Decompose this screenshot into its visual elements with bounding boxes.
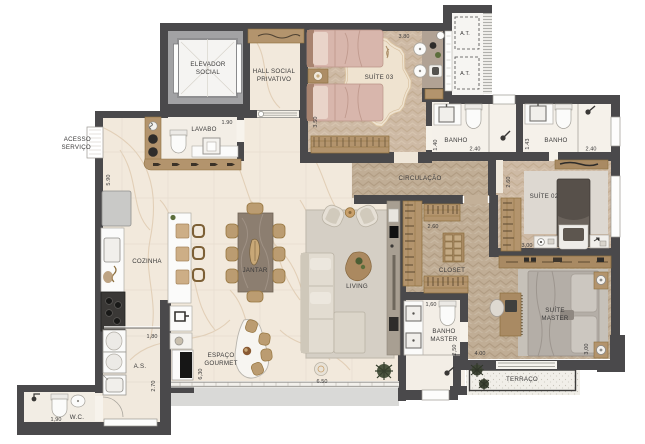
svg-text:4.00: 4.00 [474, 351, 485, 357]
svg-text:BANHO: BANHO [444, 137, 467, 144]
svg-text:1,90: 1,90 [50, 417, 61, 423]
svg-text:3.80: 3.80 [398, 34, 409, 40]
svg-text:W.C.: W.C. [70, 414, 84, 421]
svg-text:ELEVADOR: ELEVADOR [190, 61, 226, 68]
svg-text:HALL SOCIAL: HALL SOCIAL [253, 68, 296, 75]
svg-text:PRIVATIVO: PRIVATIVO [257, 76, 291, 83]
svg-text:CLOSET: CLOSET [439, 267, 465, 274]
svg-text:GOURMET: GOURMET [204, 360, 237, 367]
svg-text:SUÍTE 03: SUÍTE 03 [365, 74, 394, 81]
svg-text:ACESSO: ACESSO [64, 136, 91, 143]
svg-text:3,00: 3,00 [584, 343, 590, 354]
svg-text:LIVING: LIVING [346, 283, 368, 290]
svg-text:BANHO: BANHO [544, 137, 567, 144]
svg-text:A.T.: A.T. [460, 71, 470, 77]
svg-text:ESPAÇO: ESPAÇO [208, 352, 235, 359]
svg-text:1.40: 1.40 [433, 139, 439, 150]
svg-text:3,00: 3,00 [521, 243, 532, 249]
svg-text:1,80: 1,80 [146, 334, 157, 340]
svg-text:3.50: 3.50 [313, 116, 319, 127]
svg-text:BANHO: BANHO [432, 328, 455, 335]
svg-text:SUÍTE 02: SUÍTE 02 [530, 193, 559, 200]
svg-text:1,60: 1,60 [425, 302, 436, 308]
svg-text:6.50: 6.50 [316, 379, 327, 385]
svg-text:CIRCULAÇÃO: CIRCULAÇÃO [398, 175, 441, 182]
svg-text:1.43: 1.43 [525, 138, 531, 149]
svg-text:2.60: 2.60 [506, 176, 512, 187]
svg-text:MASTER: MASTER [541, 315, 569, 322]
svg-text:5.90: 5.90 [106, 174, 112, 185]
svg-text:2,50: 2,50 [452, 344, 458, 355]
svg-text:JANTAR: JANTAR [242, 267, 267, 274]
svg-text:2.40: 2.40 [469, 147, 480, 153]
svg-text:LAVABO: LAVABO [191, 126, 216, 133]
svg-text:SUÍTE: SUÍTE [545, 307, 564, 314]
svg-text:A.S.: A.S. [134, 363, 147, 370]
svg-text:2.60: 2.60 [427, 224, 438, 230]
svg-text:2.70: 2.70 [151, 380, 157, 391]
svg-text:SOCIAL: SOCIAL [196, 69, 221, 76]
svg-text:COZINHA: COZINHA [132, 258, 162, 265]
svg-text:A.T.: A.T. [460, 31, 470, 37]
svg-text:2.40: 2.40 [585, 147, 596, 153]
svg-text:SERVIÇO: SERVIÇO [62, 144, 92, 151]
svg-text:1.90: 1.90 [221, 120, 232, 126]
svg-text:MASTER: MASTER [430, 336, 458, 343]
svg-text:TERRAÇO: TERRAÇO [506, 376, 538, 383]
svg-text:6,30: 6,30 [198, 368, 204, 379]
